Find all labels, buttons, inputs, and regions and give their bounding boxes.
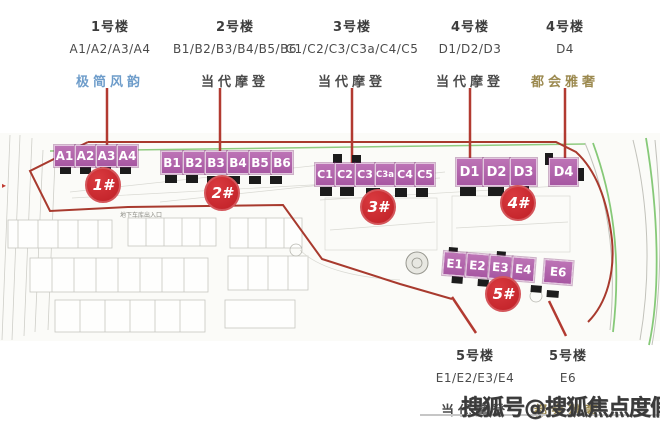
underground-garage-label: 地下车库出入口 [120, 210, 162, 219]
building-unit-cell: B5 [249, 151, 271, 174]
building-unit-cell: D1 [456, 158, 483, 186]
building-unit-cell: D3 [510, 158, 537, 186]
building-unit-cell: B3 [205, 151, 227, 174]
badge-2: 2# [204, 175, 240, 211]
building-unit-cell: C2 [335, 163, 355, 186]
badge-3: 3# [360, 189, 396, 225]
building-unit-cell: D2 [483, 158, 510, 186]
sohu-watermark: 搜狐号@搜狐焦点度假站 [461, 390, 660, 422]
building-unit-cell: A2 [75, 145, 96, 167]
building-row-4: D1D2D3D4 [456, 158, 578, 186]
building-unit-cell: A3 [96, 145, 117, 167]
building-unit-cell: B6 [271, 151, 293, 174]
badge-1: 1# [85, 167, 121, 203]
building-unit-cell: C3 [355, 163, 375, 186]
building-unit-cell: C5 [415, 163, 435, 186]
building-unit-cell: E1 [442, 251, 467, 277]
badge-4: 4# [500, 185, 536, 221]
building-unit-cell: A1 [54, 145, 75, 167]
site-plan-map-canvas [0, 0, 660, 423]
building-unit-cell: E2 [465, 253, 490, 279]
building-row-3: C1C2C3C3aC4C5 [315, 163, 435, 186]
building-unit-cell: E6 [543, 259, 574, 285]
building-unit-cell: E4 [511, 256, 536, 282]
building-unit-cell: B2 [183, 151, 205, 174]
boundary-marker-icon: ▸ [2, 181, 6, 190]
building-row-2: B1B2B3B4B5B6 [161, 151, 293, 174]
building-unit-cell: A4 [117, 145, 138, 167]
badge-5: 5# [485, 276, 521, 312]
building-unit-cell: C4 [395, 163, 415, 186]
building-unit-cell: C3a [375, 163, 395, 186]
building-unit-cell: D4 [549, 158, 578, 186]
building-unit-cell: C1 [315, 163, 335, 186]
building-unit-cell: B1 [161, 151, 183, 174]
building-unit-cell: B4 [227, 151, 249, 174]
site-plan-image: 1号楼 A1/A2/A3/A4 极简风韵 2号楼 B1/B2/B3/B4/B5/… [0, 0, 660, 423]
building-row-1: A1A2A3A4 [54, 145, 138, 167]
